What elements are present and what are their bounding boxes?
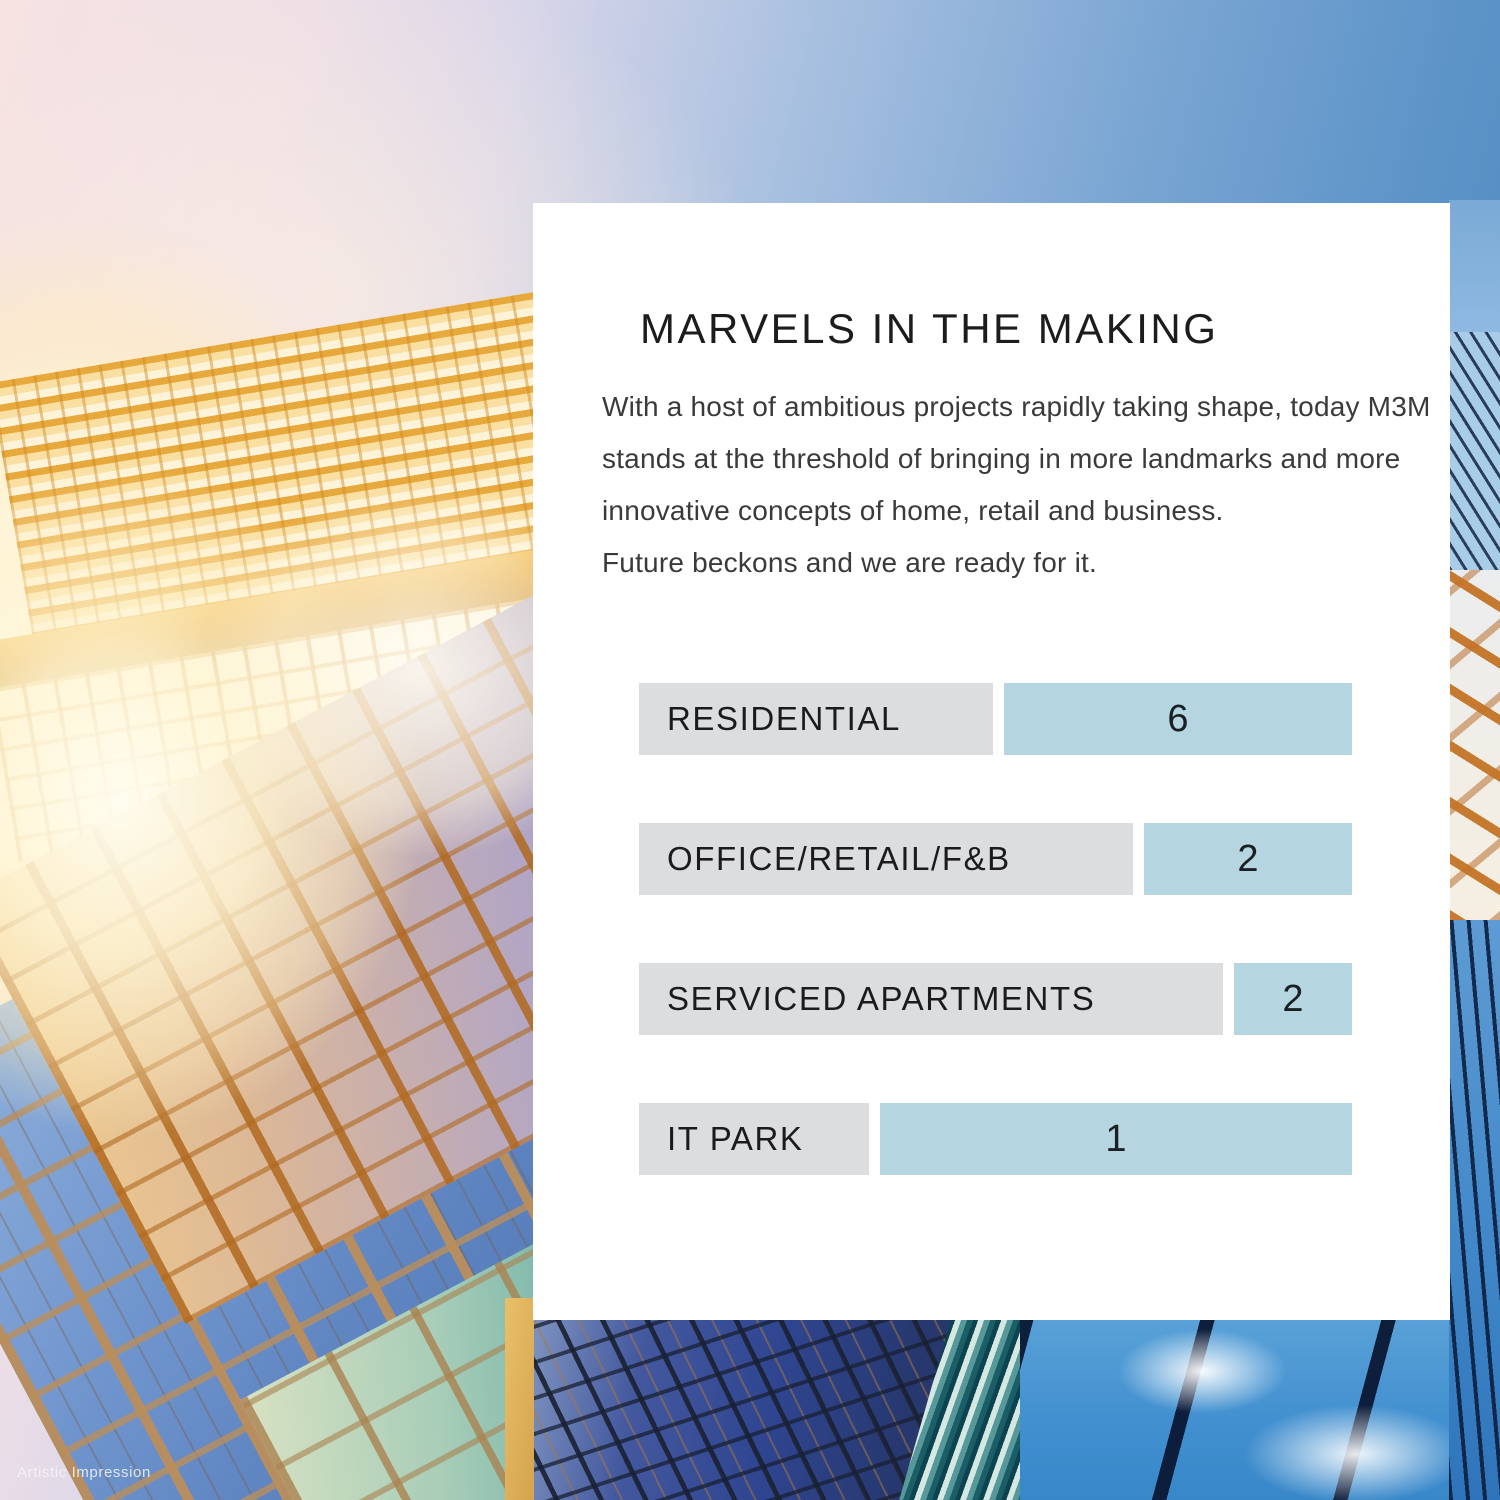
- right-edge-blue-glass: [1449, 920, 1500, 1500]
- stat-value: 6: [1004, 683, 1352, 755]
- stat-row-office-retail-fb: OFFICE/RETAIL/F&B 2: [639, 823, 1352, 895]
- right-edge-grid-glass: [1449, 332, 1500, 570]
- stat-value: 2: [1234, 963, 1352, 1035]
- intro-line: innovative concepts of home, retail and …: [602, 485, 1431, 537]
- intro-paragraph: With a host of ambitious projects rapidl…: [602, 381, 1431, 589]
- stat-label: RESIDENTIAL: [639, 683, 993, 755]
- stat-label: OFFICE/RETAIL/F&B: [639, 823, 1133, 895]
- stat-row-it-park: IT PARK 1: [639, 1103, 1352, 1175]
- project-stats: RESIDENTIAL 6 OFFICE/RETAIL/F&B 2 SERVIC…: [639, 683, 1352, 1243]
- right-edge-sky: [1449, 200, 1500, 332]
- stat-label: IT PARK: [639, 1103, 869, 1175]
- right-edge-tan-mullions: [1449, 570, 1500, 920]
- stat-row-residential: RESIDENTIAL 6: [639, 683, 1352, 755]
- stat-value: 1: [880, 1103, 1352, 1175]
- intro-line: stands at the threshold of bringing in m…: [602, 433, 1431, 485]
- intro-line: With a host of ambitious projects rapidl…: [602, 381, 1431, 433]
- page-title: MARVELS IN THE MAKING: [640, 305, 1218, 353]
- content-card: MARVELS IN THE MAKING With a host of amb…: [533, 203, 1450, 1320]
- brochure-page: Artistic Impression MARVELS IN THE MAKIN…: [0, 0, 1500, 1500]
- stat-label: SERVICED APARTMENTS: [639, 963, 1223, 1035]
- artistic-impression-caption: Artistic Impression: [17, 1464, 151, 1481]
- stat-row-serviced-apartments: SERVICED APARTMENTS 2: [639, 963, 1352, 1035]
- bottom-right-sky-with-towers: [1020, 1316, 1500, 1500]
- deep-blue-tower: [534, 1304, 954, 1500]
- right-edge-tower: [1449, 200, 1500, 1500]
- intro-line: Future beckons and we are ready for it.: [602, 537, 1431, 589]
- stat-value: 2: [1144, 823, 1352, 895]
